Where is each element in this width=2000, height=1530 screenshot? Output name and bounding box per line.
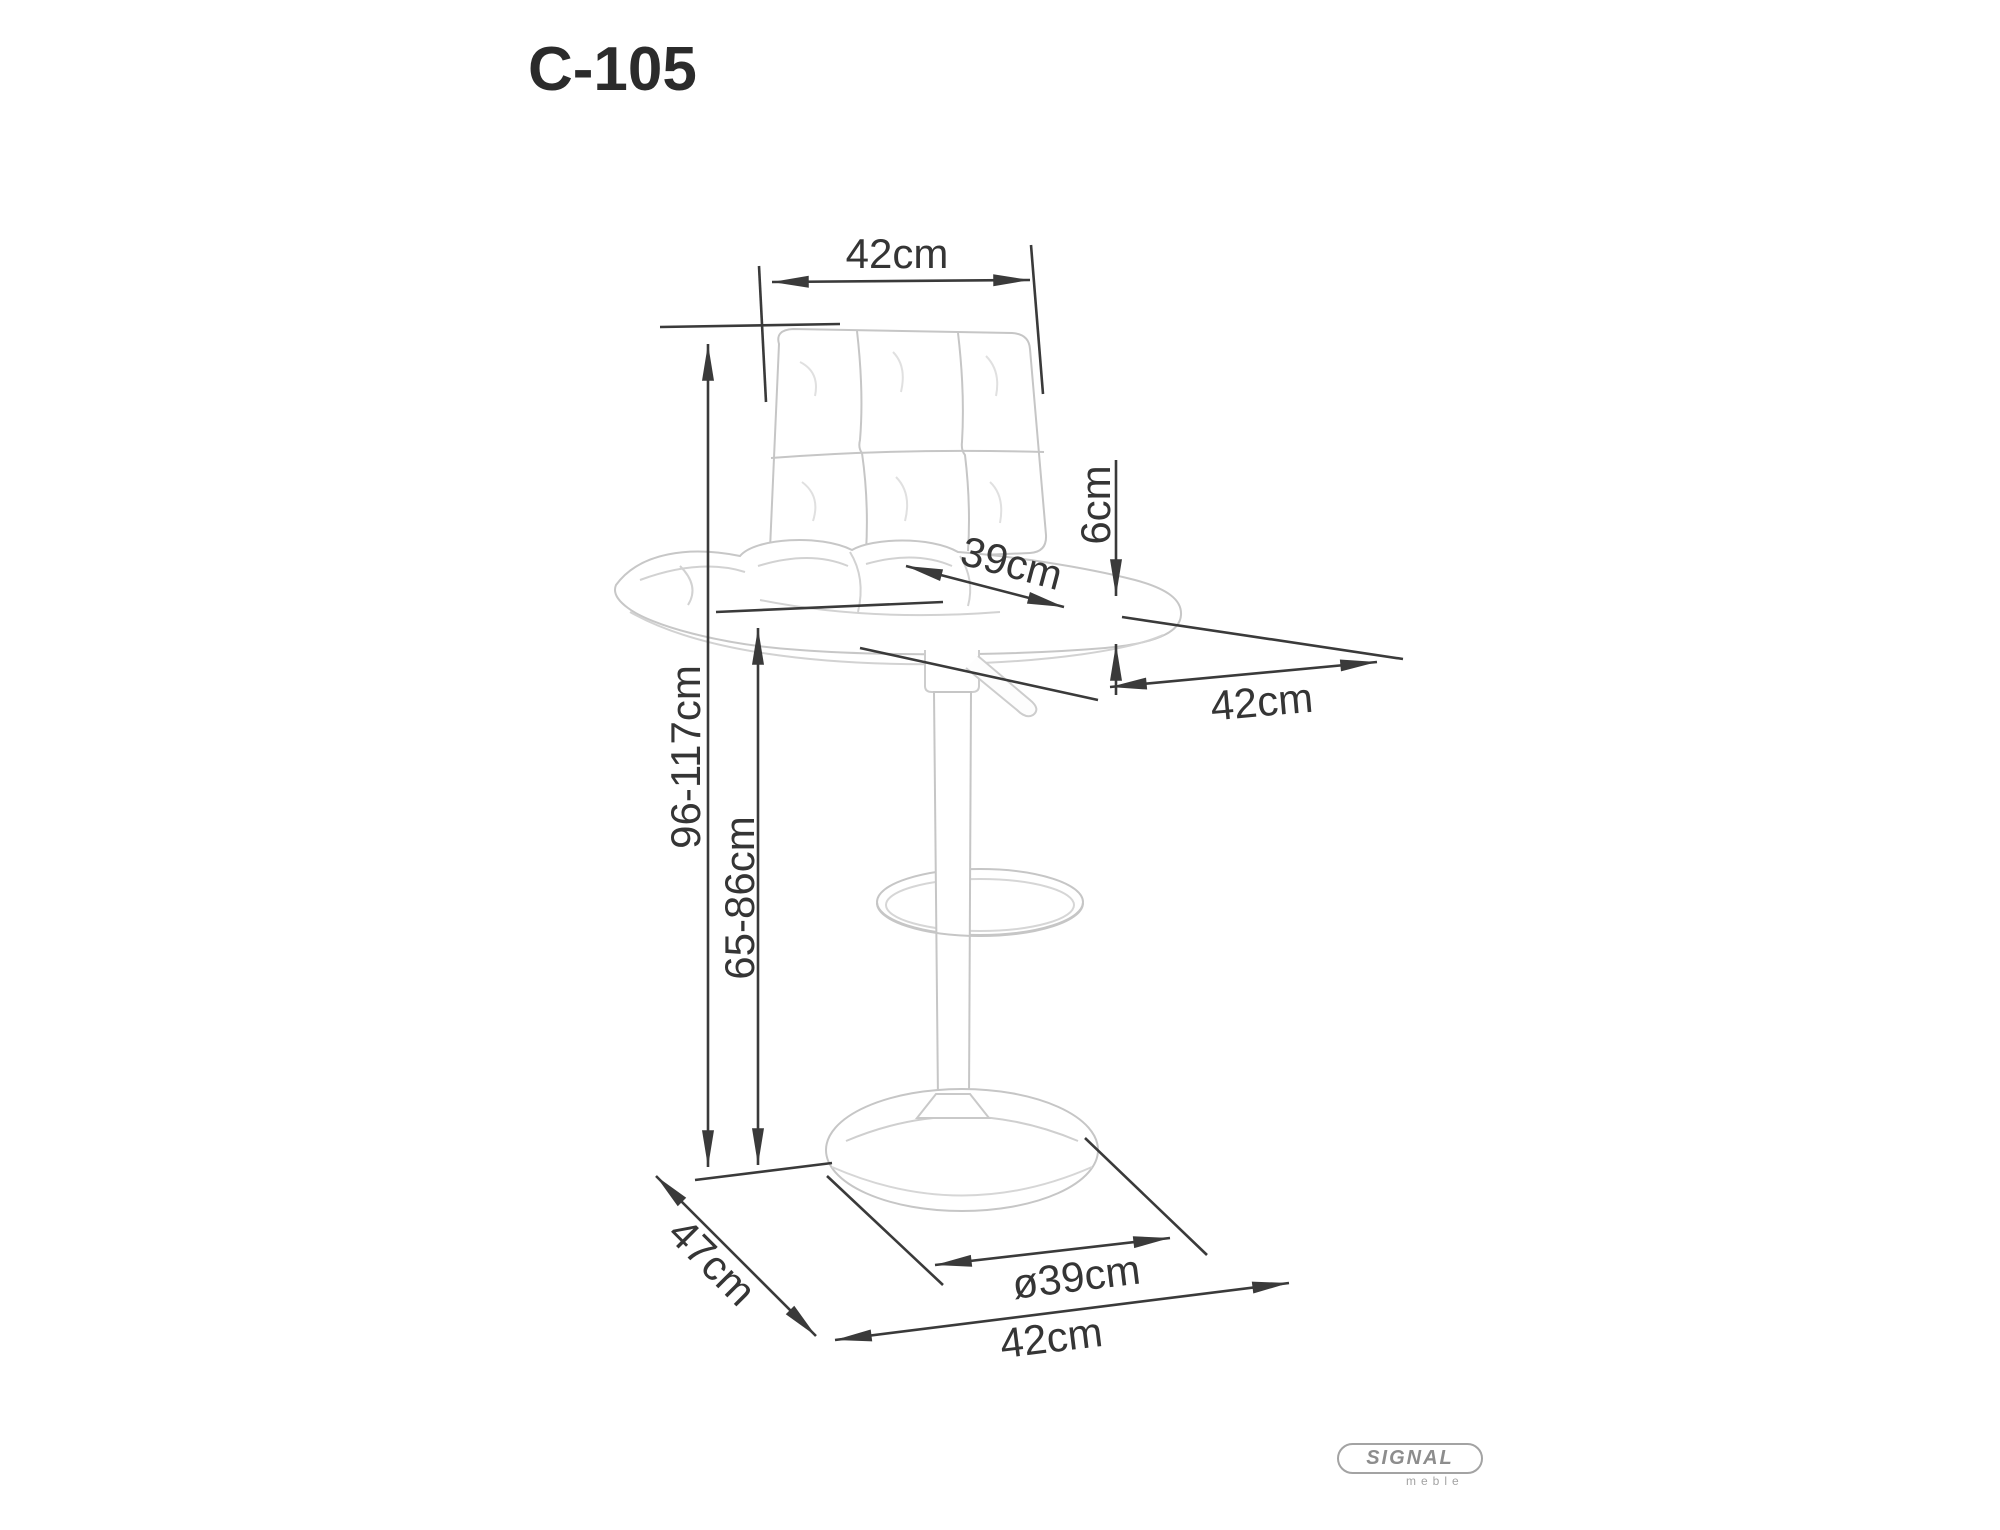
label-seat-thickness: 6cm xyxy=(1072,465,1119,544)
dimension-drawing: 42cm 96-117cm 65-86cm 39cm 6cm 42cm ø39c… xyxy=(0,0,2000,1530)
backrest-outline xyxy=(770,329,1046,563)
ext-line-backrest-left xyxy=(759,266,766,402)
pole xyxy=(934,692,971,1100)
signal-logo: SIGNAL xyxy=(1337,1443,1483,1474)
ext-line-floor xyxy=(695,1163,832,1180)
ext-line-top xyxy=(660,324,840,327)
label-backrest-width: 42cm xyxy=(846,230,949,277)
product-dimension-sheet: C-105 xyxy=(0,0,2000,1530)
foot-ring-inner xyxy=(886,879,1074,931)
signal-logo-subtitle: meble xyxy=(1406,1474,1464,1488)
label-seat-height: 65-86cm xyxy=(716,816,763,979)
label-footprint-depth: 47cm xyxy=(659,1209,765,1315)
signal-logo-text: SIGNAL xyxy=(1366,1447,1454,1470)
ext-line-base-diameter-right xyxy=(1085,1138,1207,1255)
label-total-height: 96-117cm xyxy=(662,665,709,849)
ext-line-seat-depth-right xyxy=(1122,617,1403,659)
label-seat-depth: 42cm xyxy=(1209,674,1315,730)
dim-line-backrest-width xyxy=(772,280,1030,282)
